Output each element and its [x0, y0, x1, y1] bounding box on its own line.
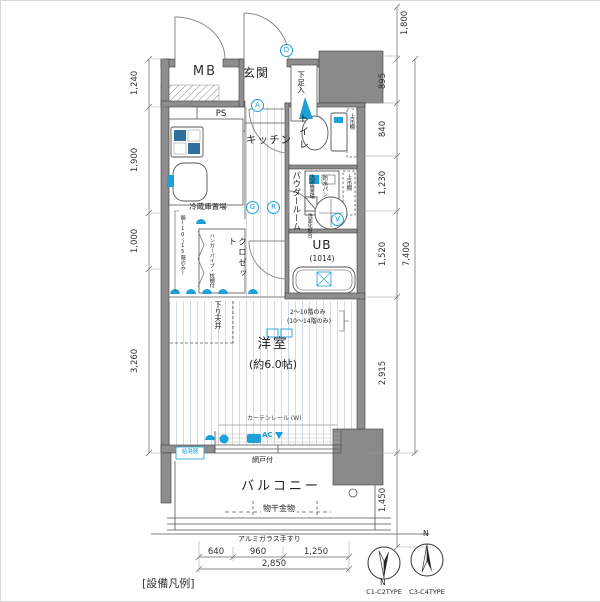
floorplan-page: MB 玄関 下足入 PS キッチン トイレ 上吊棚 パウダールーム 洗濯機置場 … — [0, 0, 600, 602]
label-powder-shelf: 上吊棚 — [345, 174, 351, 214]
room-label-mb: MB — [169, 65, 241, 80]
label-curtain-rail: カーテンレール (W) — [247, 416, 302, 423]
compass1-north-label: N — [380, 579, 386, 588]
dim-left-1240: 1,240 — [130, 61, 140, 105]
mb-door-arc — [175, 17, 225, 59]
room-label-toilet: トイレ — [296, 113, 308, 165]
faucet-icon — [167, 175, 174, 187]
label-screen-door: 網戸付 — [252, 456, 273, 464]
pillar-bottom-right — [333, 429, 383, 485]
dim-right-895: 895 — [378, 59, 388, 103]
label-drying-fixture: 物干金物 — [261, 504, 297, 513]
room-label-main: 洋室 — [225, 337, 321, 353]
handrail-lines — [167, 518, 391, 530]
label-fridge-space: 冷蔵庫置場 — [188, 203, 228, 212]
label-ps: PS — [197, 110, 245, 120]
label-toilet-shelf: 上吊棚 — [348, 113, 354, 157]
room-label-bath: UB — [289, 239, 355, 253]
label-ac: AC — [262, 431, 273, 439]
room-label-balcony: バルコニー — [226, 480, 336, 495]
dim-right-2915: 2,915 — [378, 351, 388, 395]
compass-c1-c2 — [368, 547, 400, 579]
dim-right-840: 840 — [378, 107, 388, 151]
room-label-kitchen: キッチン — [246, 134, 292, 146]
compass-c3-c4 — [411, 544, 443, 576]
room-label-powder: パウダールーム — [290, 171, 300, 247]
circle-marker-a: A — [251, 99, 264, 112]
dim-right-1520: 1,520 — [378, 232, 388, 276]
label-water-heater: 給湯器 — [176, 449, 204, 455]
dim-right-1230: 1,230 — [378, 161, 388, 205]
circle-marker-g: G — [246, 201, 259, 214]
label-soffit: 下り天井 — [214, 301, 222, 343]
room-label-entrance: 玄関 — [243, 67, 269, 81]
label-handrail: アルミガラス手すり — [238, 535, 301, 543]
pillar-top-right — [319, 51, 383, 103]
dim-bottom-1250: 1,250 — [283, 547, 349, 557]
label-floor-note-1: 2〜10階のみ — [290, 310, 325, 317]
label-washer-pan: 防水パン — [321, 175, 327, 215]
dim-left-1900: 1,900 — [130, 138, 140, 182]
circle-marker-v: V — [331, 213, 344, 226]
label-shoe-box: 下足入 — [296, 71, 305, 119]
label-mirror-note: 鏡(10〜15階のみ) — [179, 215, 185, 289]
compass2-north-label: N — [423, 530, 429, 539]
legend-title: [設備凡例] — [142, 578, 195, 591]
dim-bottom-2850: 2,850 — [199, 559, 349, 569]
dim-right-7400: 7,400 — [402, 232, 412, 276]
kitchen-sink — [173, 163, 207, 201]
label-bath-size: (1014) — [289, 255, 355, 264]
balcony-drain — [349, 489, 357, 497]
circle-marker-d: D — [280, 44, 293, 57]
room-label-closet: クロゼット — [226, 237, 246, 289]
label-floor-note-2: (10〜14階のみ) — [287, 319, 331, 326]
label-hanger-note: ハンガーパイプ・枕棚付 — [208, 233, 214, 293]
dim-left-3260: 3,260 — [130, 339, 140, 383]
dim-right-1800: 1,800 — [400, 1, 410, 45]
dim-left-1000: 1,000 — [130, 219, 140, 263]
label-washer-space: 洗濯機置場 — [308, 174, 314, 216]
compass2-type-label: C3-C4TYPE — [399, 589, 455, 596]
dim-bottom-960: 960 — [233, 547, 283, 557]
label-main-size: (約6.0帖) — [225, 359, 321, 372]
dim-bottom-640: 640 — [199, 547, 233, 557]
circle-marker-r: R — [267, 201, 280, 214]
dim-right-1450: 1,450 — [378, 478, 388, 522]
